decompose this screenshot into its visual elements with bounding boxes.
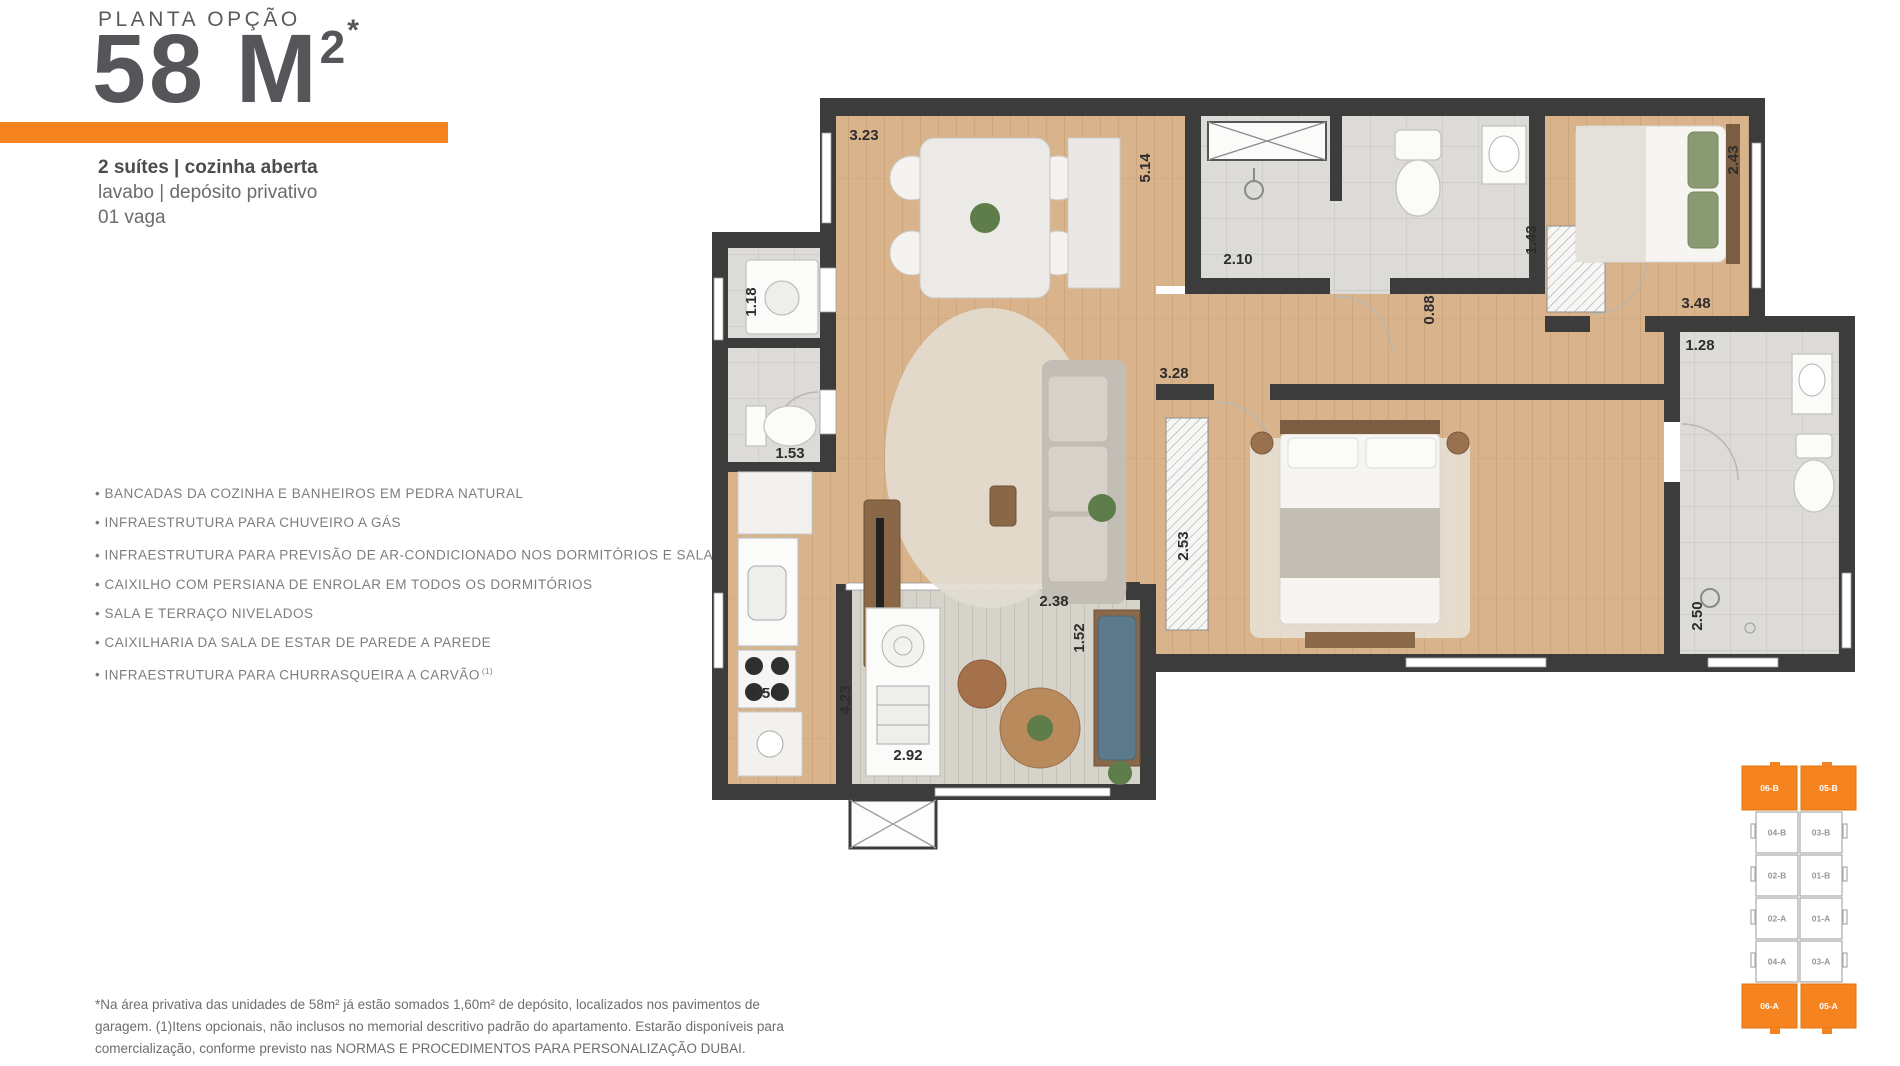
keyplan: 06-B05-B04-B03-B02-B01-B02-A01-A04-A03-A… (1740, 762, 1860, 1042)
window-terrace (935, 788, 1110, 796)
toilet-icon (746, 406, 766, 446)
keyplan-notch (1751, 824, 1755, 838)
dining-set (890, 138, 1120, 298)
area-value: 58 M (92, 14, 320, 123)
sink-icon (1489, 136, 1519, 172)
area-superscript: 2 (320, 21, 346, 73)
window-kitchen (714, 593, 723, 668)
headboard (1726, 124, 1740, 264)
disclaimer-line-2: garagem. (1)Itens opcionais, não incluso… (95, 1016, 784, 1038)
keyplan-notch (1751, 867, 1755, 881)
basin-icon (882, 625, 924, 667)
keyplan-notch (1822, 1028, 1832, 1034)
dimension-label: 2.50 (1689, 601, 1706, 630)
feature-item: SALA E TERRAÇO NIVELADOS (95, 599, 726, 628)
sink-icon (1799, 364, 1825, 396)
dimension-label: 2.38 (1039, 593, 1068, 610)
keyplan-unit-label: 05-B (1819, 783, 1837, 793)
spec-line-2: lavabo | depósito privativo (98, 180, 318, 205)
legal-disclaimer: *Na área privativa das unidades de 58m² … (95, 994, 784, 1060)
features-list: BANCADAS DA COZINHA E BANHEIROS EM PEDRA… (95, 479, 726, 689)
feature-item: CAIXILHARIA DA SALA DE ESTAR DE PAREDE A… (95, 628, 726, 657)
dimension-label: 0.88 (1421, 295, 1438, 324)
plant-icon (1088, 494, 1116, 522)
floor-plan: 3.235.142.101.432.433.480.881.181.533.28… (650, 38, 1870, 860)
bed-blanket (1280, 508, 1440, 578)
keyplan-notch (1770, 762, 1780, 768)
disclaimer-line-1: *Na área privativa das unidades de 58m² … (95, 994, 784, 1016)
dimension-label: 5.14 (1137, 153, 1154, 183)
door-laundry (820, 268, 836, 312)
side-table (990, 486, 1016, 526)
sink-icon (757, 731, 783, 757)
keyplan-notch (1843, 953, 1847, 967)
keyplan-notch (1751, 910, 1755, 924)
keyplan-unit-label: 03-A (1812, 957, 1830, 967)
dimension-label: 2.10 (1223, 251, 1252, 268)
toilet-icon (1794, 460, 1834, 512)
keyplan-unit-label: 04-A (1768, 957, 1786, 967)
keyplan-notch (1822, 762, 1832, 768)
dimension-label: 2.53 (1175, 531, 1192, 560)
pillow (1366, 438, 1436, 468)
dimension-label: 3.23 (849, 127, 878, 144)
toilet-icon (1796, 434, 1832, 458)
grill-icon (877, 686, 929, 744)
window-living (822, 133, 831, 223)
spec-line-1: 2 suítes | cozinha aberta (98, 155, 318, 180)
disclaimer-line-3: comercialização, conforme previsto nas N… (95, 1038, 784, 1060)
sofa-cushion (1048, 516, 1108, 582)
washer-door (765, 281, 799, 315)
keyplan-unit-label: 01-A (1812, 914, 1830, 924)
toilet-icon (1396, 160, 1440, 216)
keyplan-notch (1751, 953, 1755, 967)
bed-duvet (1576, 126, 1646, 262)
dimension-label: 2.92 (893, 747, 922, 764)
keyplan-notch (1843, 824, 1847, 838)
side-table (958, 660, 1006, 708)
toilet-icon (764, 406, 816, 446)
cabinet (738, 472, 812, 534)
pillow (1688, 192, 1718, 248)
sofa-cushion (1048, 376, 1108, 442)
brochure-page: { "header": { "kicker": "PLANTA OPÇÃO", … (0, 0, 1900, 1066)
feature-item: INFRAESTRUTURA PARA CHURRASQUEIRA A CARV… (95, 657, 726, 690)
dining-bench (1068, 138, 1120, 288)
keyplan-unit-label: 05-A (1819, 1001, 1837, 1011)
keyplan-unit-label: 03-B (1812, 828, 1830, 838)
spec-line-3: 01 vaga (98, 205, 318, 230)
plant-icon (1027, 715, 1053, 741)
headboard (1280, 420, 1440, 434)
toilet-icon (1395, 130, 1441, 160)
keyplan-unit-label: 02-B (1768, 871, 1786, 881)
plan-area-title: 58 M2* (92, 20, 362, 117)
dimension-label: 1.18 (743, 287, 760, 316)
window-suite-2 (1752, 143, 1761, 288)
feature-item: BANCADAS DA COZINHA E BANHEIROS EM PEDRA… (95, 479, 726, 508)
dimension-label: 1.53 (775, 445, 804, 462)
pillow (1288, 438, 1358, 468)
pillow (1688, 132, 1718, 188)
bench-cushion (1098, 616, 1136, 760)
keyplan-notch (1843, 867, 1847, 881)
ac-unit (850, 800, 936, 848)
dimension-label: 3.48 (1681, 295, 1710, 312)
plant-icon (1108, 761, 1132, 785)
window-bath-2 (1708, 658, 1778, 667)
keyplan-unit-label: 06-A (1760, 1001, 1778, 1011)
feature-item: INFRAESTRUTURA PARA CHUVEIRO A GÁS (95, 508, 726, 537)
closet (1166, 418, 1208, 630)
keyplan-notch (1770, 1028, 1780, 1034)
dimension-label: 1.52 (1071, 623, 1088, 652)
area-asterisk: * (347, 14, 362, 47)
keyplan-unit-label: 06-B (1760, 783, 1778, 793)
bed-bench (1305, 632, 1415, 648)
keyplan-unit-label: 04-B (1768, 828, 1786, 838)
dimension-label: 4.23 (837, 685, 854, 714)
unit-specs: 2 suítes | cozinha aberta lavabo | depós… (98, 155, 318, 230)
nightstand (1447, 432, 1469, 454)
dimension-label: 1.43 (1523, 225, 1540, 254)
keyplan-unit-label: 01-B (1812, 871, 1830, 881)
dimension-label: 3.28 (1159, 365, 1188, 382)
feature-item: INFRAESTRUTURA PARA PREVISÃO DE AR-CONDI… (95, 537, 726, 570)
window-laundry (714, 278, 723, 340)
sink-icon (748, 566, 786, 620)
door-lavabo (820, 390, 836, 434)
accent-bar (0, 122, 448, 143)
dimension-label: 1.50 (749, 685, 778, 702)
window-suite-1 (1406, 658, 1546, 667)
keyplan-units: 06-B05-B04-B03-B02-B01-B02-A01-A04-A03-A… (1742, 762, 1856, 1034)
window-right (1842, 573, 1851, 648)
keyplan-notch (1843, 910, 1847, 924)
nightstand (1251, 432, 1273, 454)
plant-icon (970, 203, 1000, 233)
keyplan-unit-label: 02-A (1768, 914, 1786, 924)
feature-item: CAIXILHO COM PERSIANA DE ENROLAR EM TODO… (95, 570, 726, 599)
dimension-label: 2.43 (1725, 145, 1742, 174)
dimension-label: 1.28 (1685, 337, 1714, 354)
